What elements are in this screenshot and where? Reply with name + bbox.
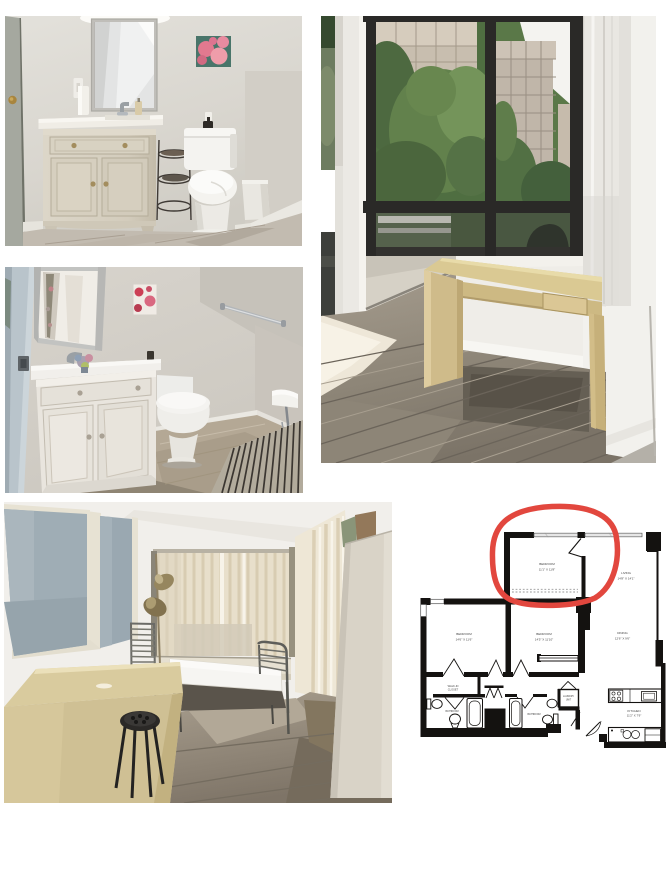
svg-text:BATHROOM: BATHROOM	[527, 713, 540, 716]
svg-text:14'5" X 11'10": 14'5" X 11'10"	[535, 638, 553, 642]
svg-text:UNIT: UNIT	[566, 700, 572, 702]
svg-text:14'8" X 14'1": 14'8" X 14'1"	[618, 577, 635, 581]
svg-text:BEDROOM: BEDROOM	[539, 562, 555, 566]
svg-text:DINING: DINING	[617, 631, 628, 635]
svg-text:LIVING: LIVING	[621, 571, 632, 575]
svg-text:12'6" X 9'6": 12'6" X 9'6"	[615, 637, 630, 641]
svg-text:BATHROOM: BATHROOM	[445, 710, 458, 713]
svg-text:BEDROOM: BEDROOM	[536, 632, 552, 636]
svg-text:WALK-IN: WALK-IN	[448, 684, 459, 688]
svg-text:14'6" X 11'6": 14'6" X 11'6"	[456, 638, 473, 642]
svg-text:BEDROOM: BEDROOM	[456, 632, 472, 636]
svg-text:11'1" X 11'8": 11'1" X 11'8"	[539, 568, 556, 572]
svg-text:KITCHEN: KITCHEN	[627, 709, 640, 713]
svg-text:LAUNDRY: LAUNDRY	[563, 695, 574, 698]
svg-text:11'2" X 7'9": 11'2" X 7'9"	[627, 714, 642, 718]
svg-text:CLOSET: CLOSET	[448, 688, 459, 692]
